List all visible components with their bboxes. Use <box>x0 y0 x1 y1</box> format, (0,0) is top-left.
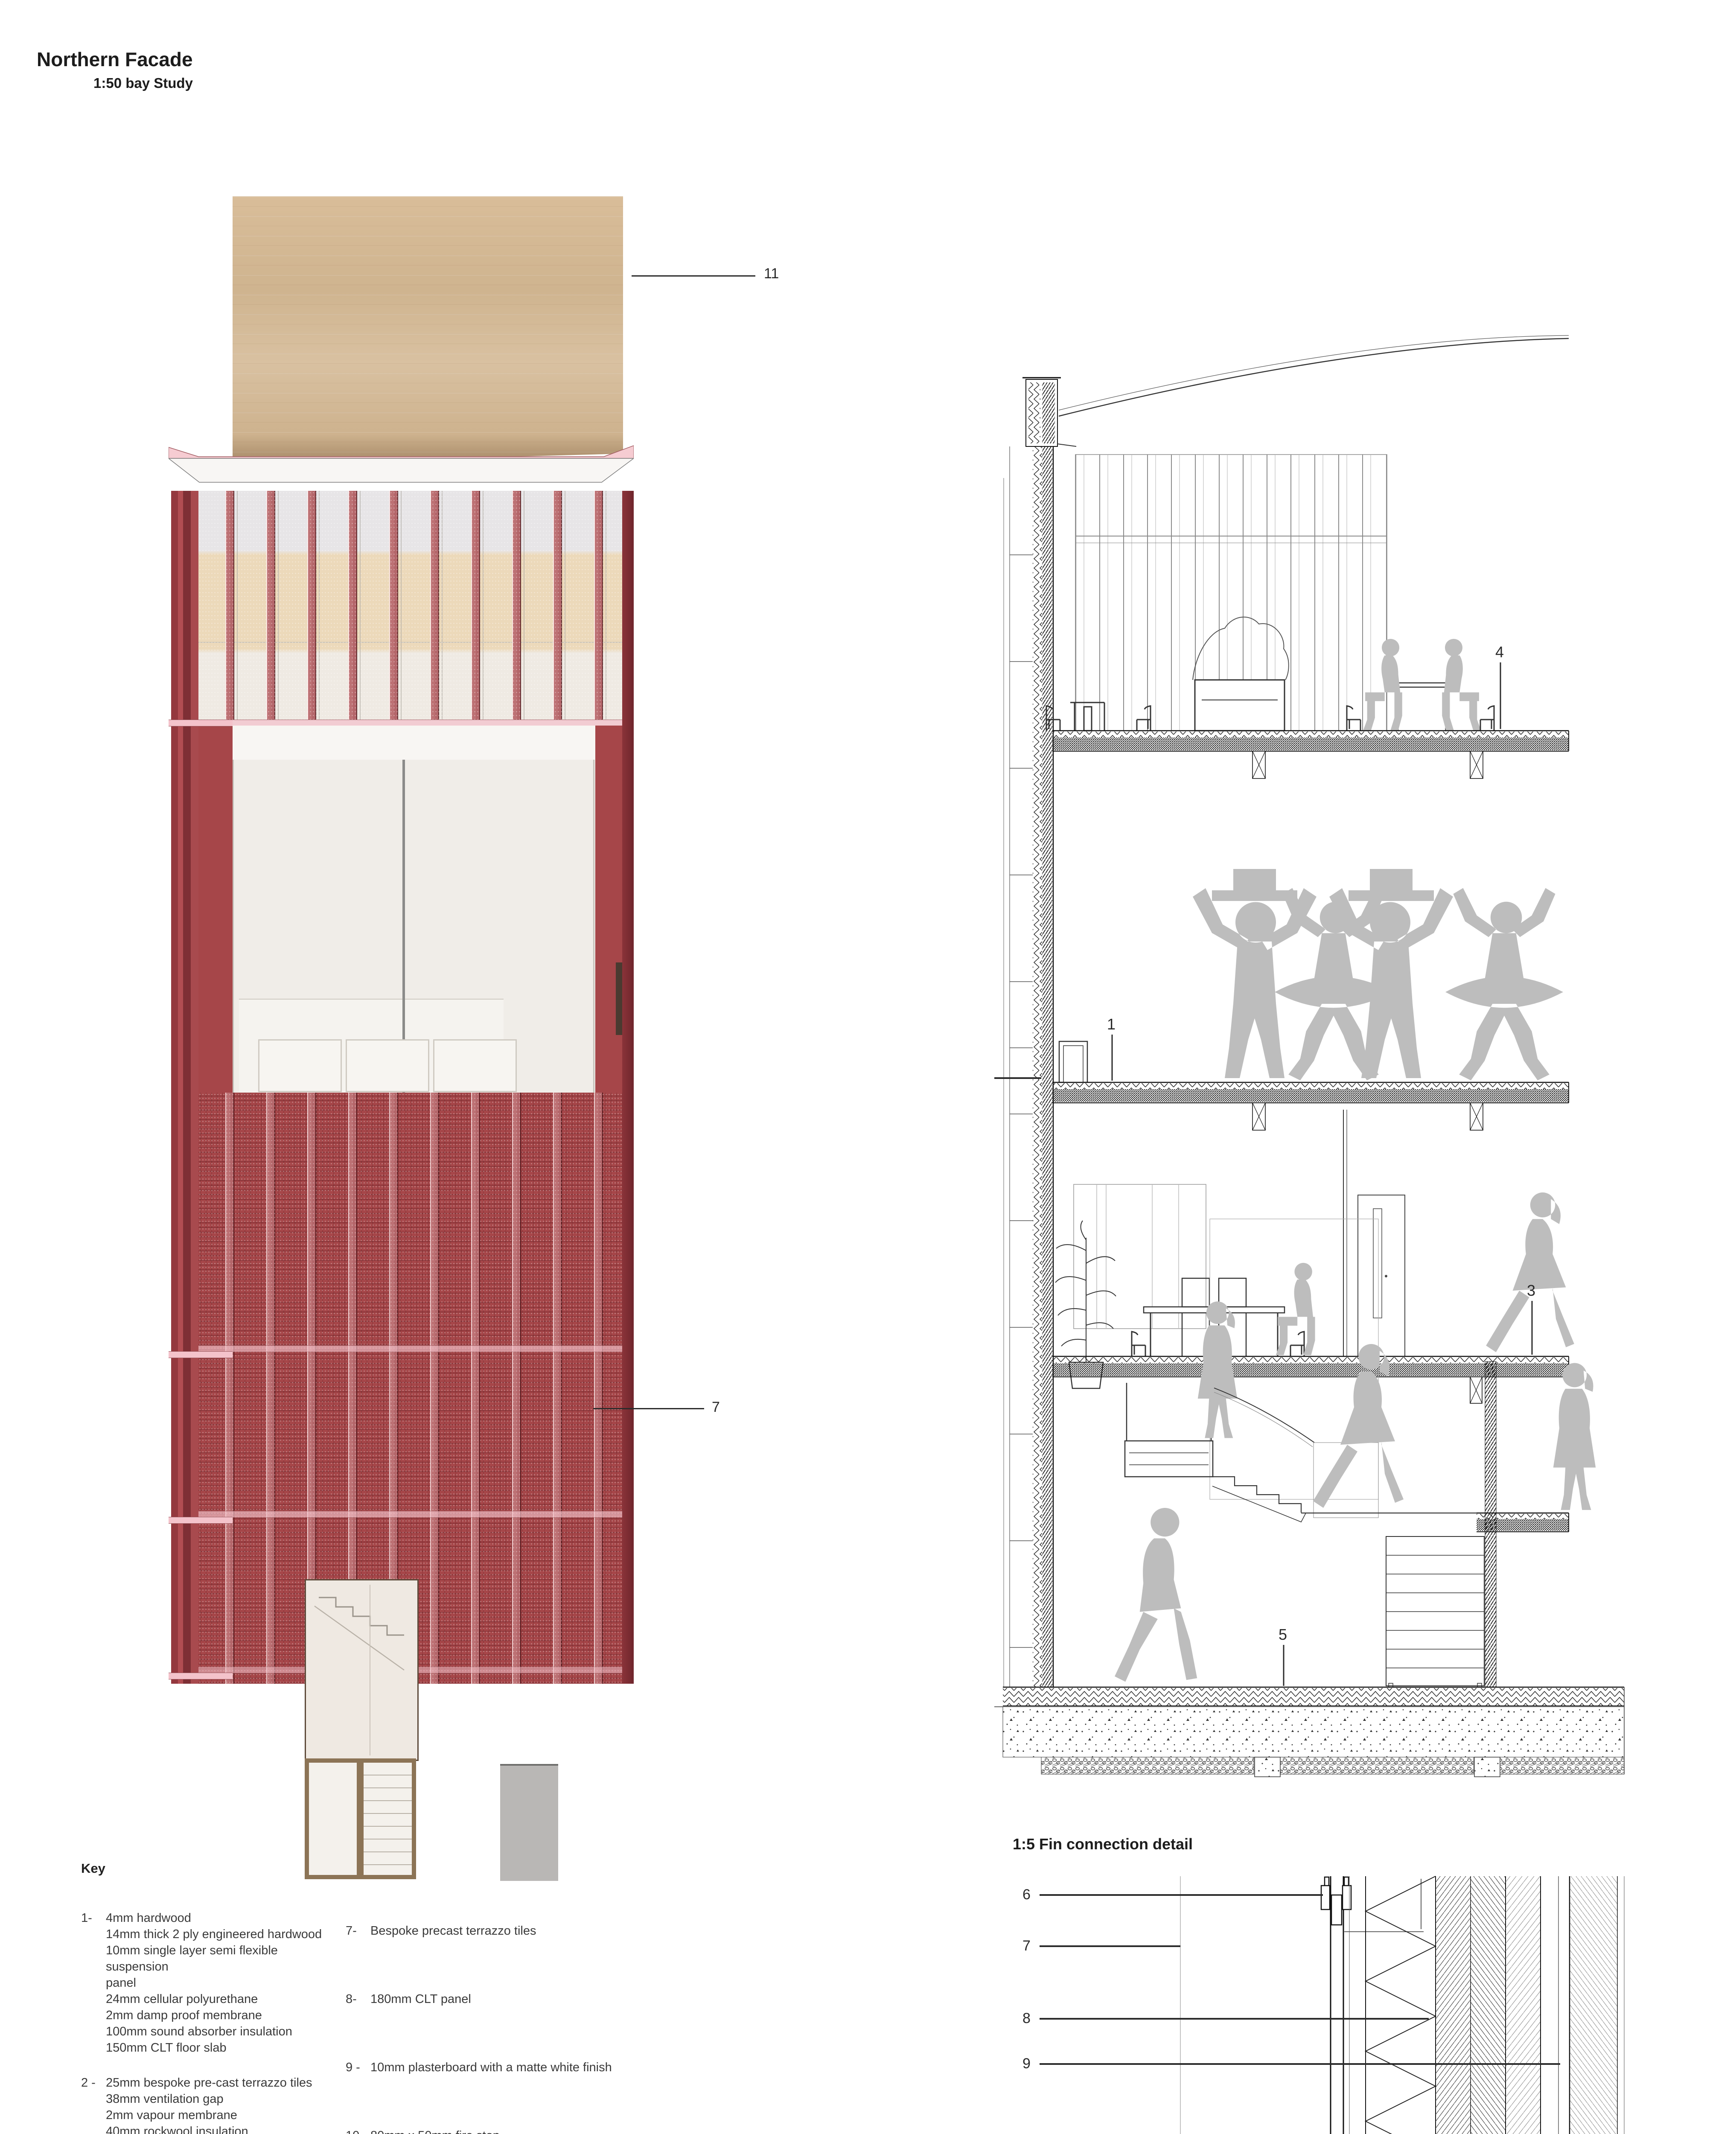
lintel-band <box>233 726 595 761</box>
section-left-wall <box>1004 378 1076 1687</box>
key-item: 10 -80mm x 50mm fire stop <box>346 2128 644 2134</box>
detail-heading: 1:5 Fin connection detail <box>1013 1835 1193 1853</box>
rail-support-top <box>1321 1877 1351 1925</box>
upper-window-band <box>169 491 634 720</box>
key-column-right: 7-Bespoke precast terrazzo tiles8-180mm … <box>346 1923 644 2134</box>
key-column-left: 1-4mm hardwood14mm thick 2 ply engineere… <box>81 1910 337 2134</box>
svg-text:9: 9 <box>1022 2055 1031 2072</box>
svg-text:6: 6 <box>1022 1886 1031 1903</box>
right-return-edge <box>622 491 634 1684</box>
section-callouts: 1 2 3 4 5 <box>994 643 1535 1686</box>
key-item: 2 -25mm bespoke pre-cast terrazzo tiles3… <box>81 2075 337 2134</box>
facade-elevation-figure <box>169 196 634 1684</box>
section-figure: 1 2 3 4 5 <box>994 294 1634 1814</box>
key-heading: Key <box>81 1861 679 1876</box>
cornice <box>169 440 634 492</box>
lower-stair <box>1386 1536 1484 1687</box>
detail-figure: 6 7 8 9 10 <box>977 1869 1626 2134</box>
dining-level <box>1055 1110 1574 1388</box>
callout-7-label: 7 <box>712 1399 720 1416</box>
key-item: 9 -10mm plasterboard with a matte white … <box>346 2059 644 2076</box>
key-item: 8-180mm CLT panel <box>346 1991 644 2007</box>
clt-core-panel <box>233 196 623 464</box>
svg-text:7: 7 <box>1022 1938 1031 1954</box>
wall-layers <box>1349 1876 1624 2134</box>
page-subtitle: 1:50 bay Study <box>93 75 193 91</box>
key-item: 7-Bespoke precast terrazzo tiles <box>346 1923 644 1939</box>
key-item: 1-4mm hardwood14mm thick 2 ply engineere… <box>81 1910 337 2056</box>
roof-curve <box>1059 338 1569 416</box>
ground-walker <box>1115 1508 1197 1682</box>
svg-text:4: 4 <box>1495 643 1504 661</box>
svg-text:3: 3 <box>1527 1282 1535 1299</box>
slab-dance <box>1052 1082 1569 1130</box>
svg-text:8: 8 <box>1022 2010 1031 2026</box>
page-title: Northern Facade <box>37 48 193 71</box>
dance-level <box>1059 869 1563 1082</box>
svg-text:5: 5 <box>1279 1626 1287 1643</box>
ground-slab <box>994 1687 1624 1797</box>
callout-11-label: 11 <box>764 265 779 282</box>
sheet: { "page": { "title": "Northern Facade", … <box>0 0 1736 2134</box>
key-legend: Key 1-4mm hardwood14mm thick 2 ply engin… <box>81 1861 679 1905</box>
slab-mezzanine <box>1477 1361 1569 1687</box>
slab-terrace <box>1052 731 1569 778</box>
svg-text:1: 1 <box>1107 1015 1116 1033</box>
stair-window <box>305 1579 419 1761</box>
main-glazing <box>233 760 595 1093</box>
lower-red-field <box>169 1093 634 1684</box>
